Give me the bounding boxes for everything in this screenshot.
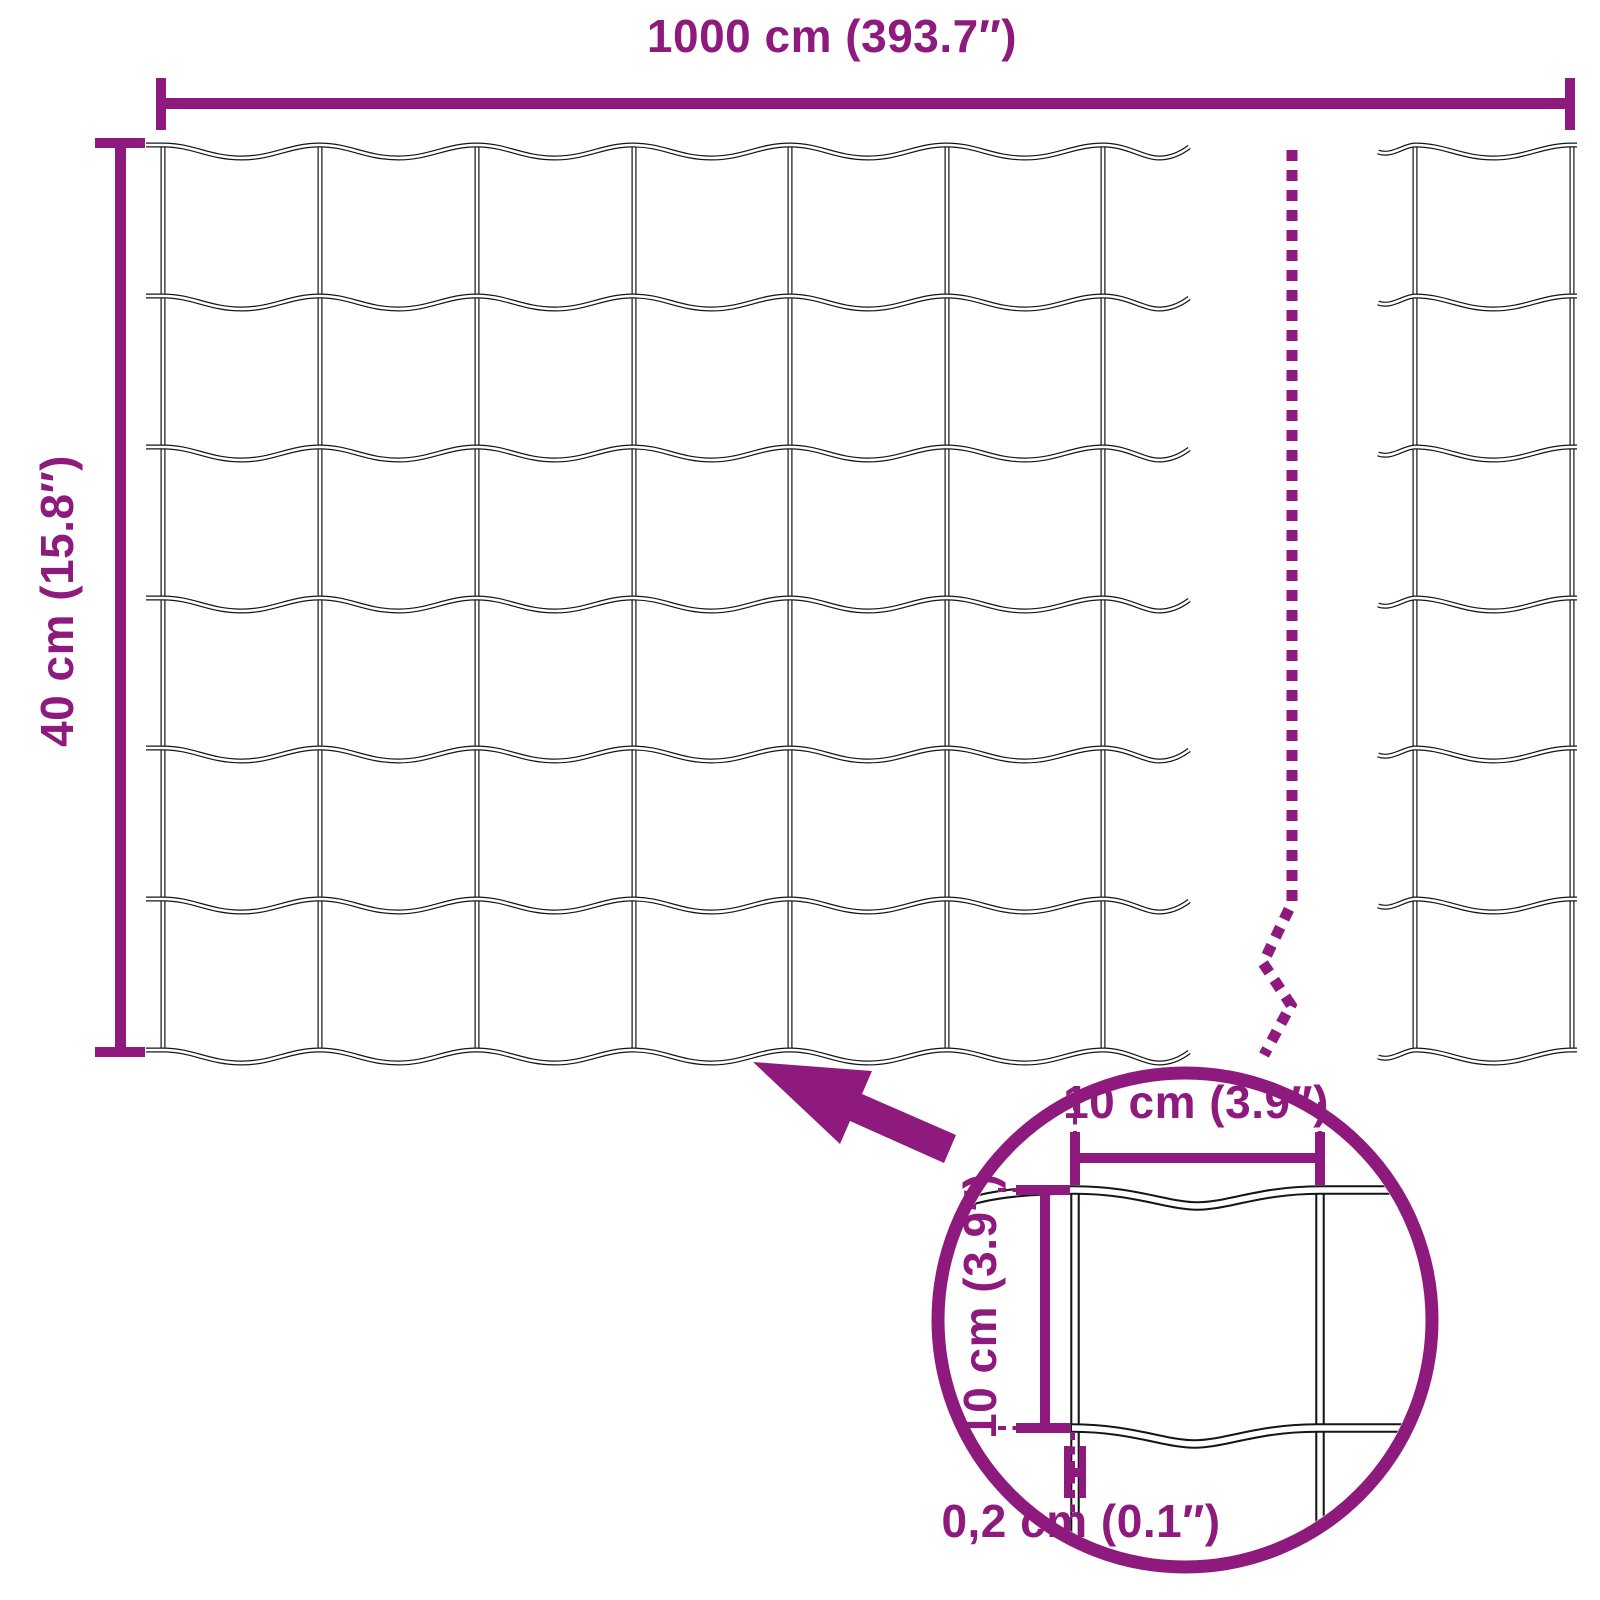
zoom-circle	[938, 1073, 1432, 1567]
wire-mesh-right-section	[1378, 145, 1577, 1063]
height-dimension	[95, 138, 145, 1057]
cell-height-label: 10 cm (3.9″)	[956, 1173, 1004, 1439]
zoom-arrow-icon	[753, 1062, 956, 1163]
width-dimension	[156, 78, 1575, 130]
wire-mesh-left-section	[146, 145, 1189, 1063]
wire-thickness-label: 0,2 cm (0.1″)	[941, 1497, 1220, 1545]
total-width-label: 1000 cm (393.7″)	[647, 12, 1017, 60]
break-line	[1263, 150, 1292, 1055]
cell-width-label: 10 cm (3.9″)	[1063, 1078, 1329, 1126]
total-height-label: 40 cm (15.8″)	[33, 455, 81, 747]
fence-dimension-diagram: 1000 cm (393.7″) 40 cm (15.8″) 10 cm (3.…	[0, 0, 1600, 1600]
diagram-graphic	[0, 0, 1600, 1600]
cell-height-dimension	[998, 1185, 1070, 1433]
